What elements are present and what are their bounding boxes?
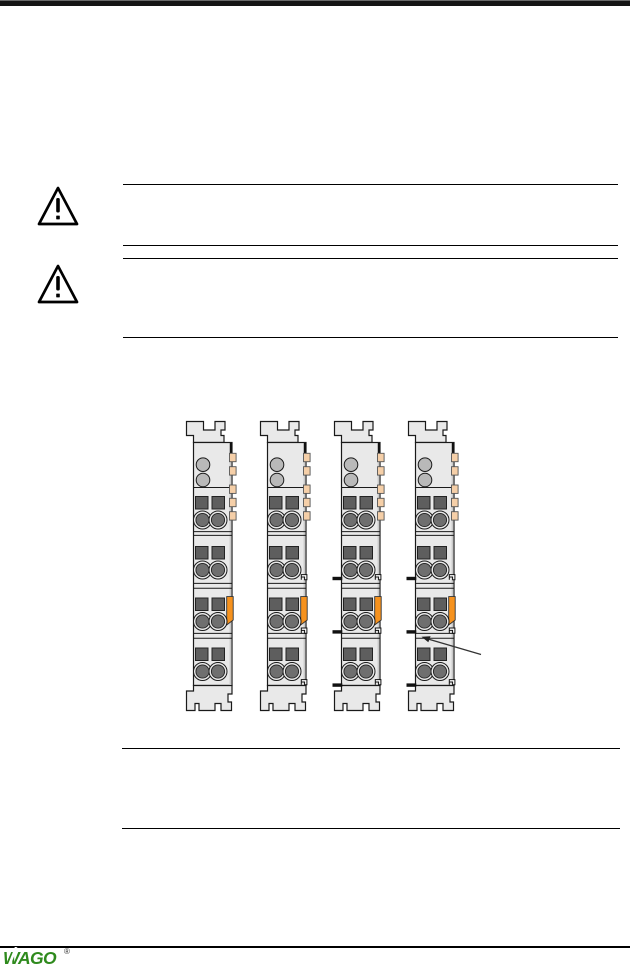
rule-warning1-bottom <box>123 245 618 246</box>
terminal-module-3 <box>333 422 385 711</box>
terminal-module-2 <box>261 422 311 711</box>
rule-warning2-top <box>123 258 618 259</box>
terminal-module-3-hooks <box>375 575 381 685</box>
terminal-module-3-left-tabs <box>333 577 343 687</box>
page-top-bar <box>0 0 630 6</box>
terminal-module-1 <box>187 422 237 711</box>
rule-note-top <box>122 748 620 749</box>
terminal-module-4-hooks <box>449 575 455 685</box>
terminal-modules-figure <box>0 0 630 971</box>
wago-logo: WAGO ® <box>2 947 78 969</box>
rule-note-bottom <box>122 828 620 829</box>
terminal-module-2-hooks <box>301 575 307 685</box>
terminal-module-4 <box>407 422 459 711</box>
registered-trademark: ® <box>64 947 70 956</box>
warning-triangle-icon <box>36 263 80 306</box>
rule-warning1-top <box>123 184 618 185</box>
warning-triangle-icon <box>36 185 80 228</box>
modules-layer <box>187 422 459 711</box>
document-page: WAGO ® <box>0 0 630 971</box>
terminal-module-4-left-tabs <box>407 577 417 687</box>
rule-warning2-bottom <box>123 337 618 338</box>
pointer-arrow <box>422 636 482 654</box>
footer-rule <box>0 946 630 948</box>
